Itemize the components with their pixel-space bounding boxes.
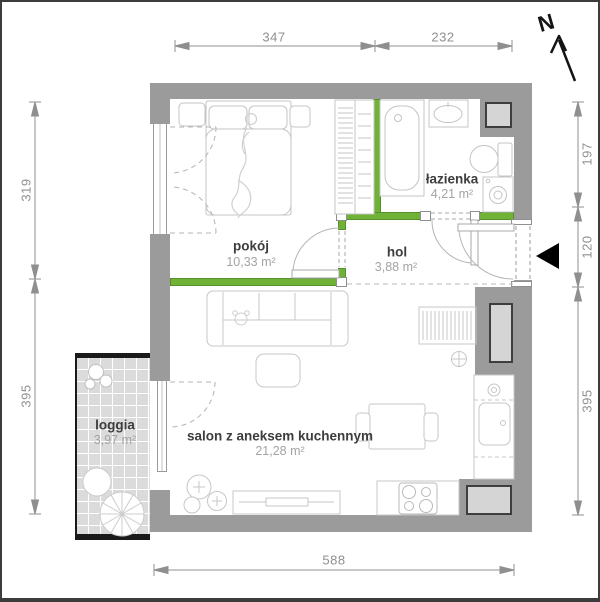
plant-monstera	[184, 475, 227, 513]
entrance-door	[458, 224, 530, 279]
room-label-loggia: loggia	[95, 418, 135, 433]
room-area-lazienka: 4,21 m²	[431, 187, 473, 201]
dim-left-upper: 319	[20, 178, 33, 201]
sofa	[207, 291, 348, 346]
dim-top-right: 232	[431, 31, 454, 44]
dim-left-lower: 395	[20, 384, 33, 407]
dim-right-lower: 395	[581, 389, 594, 412]
room-label-salon: salon z aneksem kuchennym	[187, 429, 373, 444]
room-label-lazienka: łazienka	[426, 172, 479, 187]
room-area-salon: 21,28 m²	[255, 444, 304, 458]
radiator	[419, 307, 476, 344]
room-label-hol: hol	[387, 245, 407, 260]
bathtub	[380, 100, 424, 196]
stove	[399, 483, 437, 514]
loggia-plant	[85, 365, 112, 390]
washing-machine	[483, 177, 513, 212]
plan-overlay: N	[2, 2, 600, 602]
coffee-table	[256, 354, 300, 387]
floor-plan-canvas: N 347 232 588 319 395 197 120 395 pokój …	[0, 0, 600, 602]
room-label-pokoj: pokój	[233, 239, 269, 254]
room-area-loggia: 3,97 m²	[94, 433, 136, 447]
bed	[179, 101, 310, 215]
dim-top-left: 347	[262, 31, 285, 44]
dim-bottom: 588	[322, 554, 345, 567]
kitchen-sink	[479, 403, 510, 445]
washbasin	[429, 100, 468, 127]
room-area-hol: 3,88 m²	[375, 260, 417, 274]
lazienka-door	[431, 213, 478, 265]
dim-right-upper: 197	[581, 142, 594, 165]
north-label: N	[535, 9, 557, 37]
pokoj-door	[292, 228, 345, 278]
tv-stand	[233, 491, 340, 514]
garden-chair	[100, 492, 144, 536]
entrance-arrow-icon	[536, 243, 559, 269]
room-area-pokoj: 10,33 m²	[226, 255, 275, 269]
round-table	[83, 468, 111, 496]
dim-right-entrance: 120	[581, 235, 594, 258]
north-arrow-icon: N	[535, 9, 575, 81]
wardrobe	[335, 100, 374, 214]
balcony-door-swing	[170, 382, 215, 427]
vent-icon	[452, 352, 467, 367]
gas-meter-icon	[488, 384, 500, 396]
